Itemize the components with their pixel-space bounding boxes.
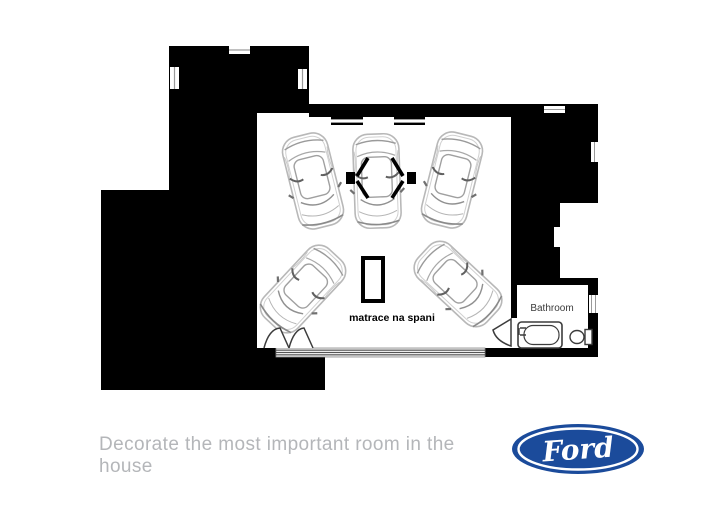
nightstand-right-icon	[407, 172, 416, 184]
bathtub-icon	[518, 322, 562, 348]
wall-bathroom-left	[511, 285, 517, 318]
cars	[251, 128, 511, 342]
ford-logo-script: Ford	[540, 431, 614, 469]
radiator-bar-icon	[331, 117, 363, 125]
bathroom-label: Bathroom	[530, 303, 573, 314]
wall-top	[309, 104, 511, 117]
radiator-bar-icon	[394, 117, 425, 125]
window-top-left-top	[229, 46, 250, 54]
bathroom-door-icon	[493, 319, 511, 346]
wall-bottom-right	[485, 348, 598, 357]
car-top-view-icon	[251, 236, 355, 342]
nightstand-left-icon	[346, 172, 355, 184]
wall-left-mass	[101, 46, 325, 390]
window-bathroom-right	[589, 295, 598, 313]
car-top-view-icon	[414, 128, 489, 232]
wall-bathroom-top	[511, 278, 598, 285]
mattress-label: matrace na spani	[349, 312, 435, 324]
top-wall-radiators	[331, 117, 425, 125]
window-right-top	[544, 106, 565, 113]
toilet-icon	[570, 330, 592, 345]
ford-advert-page: matrace na spani Bathroom	[0, 0, 720, 507]
window-top-left-right	[298, 69, 307, 89]
window-top-left-left	[170, 67, 179, 89]
tagline-text: Decorate the most important room in the …	[99, 434, 499, 478]
car-top-view-icon	[348, 133, 405, 229]
ford-logo: Ford	[508, 421, 648, 477]
window-column-edge	[554, 227, 560, 247]
wall-right-mass	[511, 104, 598, 203]
wall-column	[511, 203, 560, 278]
mattress-rect	[363, 258, 383, 301]
terrace-door-stripes	[276, 348, 485, 357]
floor-plan: matrace na spani Bathroom	[0, 0, 720, 415]
window-right-edge	[591, 142, 598, 162]
car-top-view-icon	[275, 129, 350, 233]
bathroom: Bathroom	[493, 303, 592, 348]
